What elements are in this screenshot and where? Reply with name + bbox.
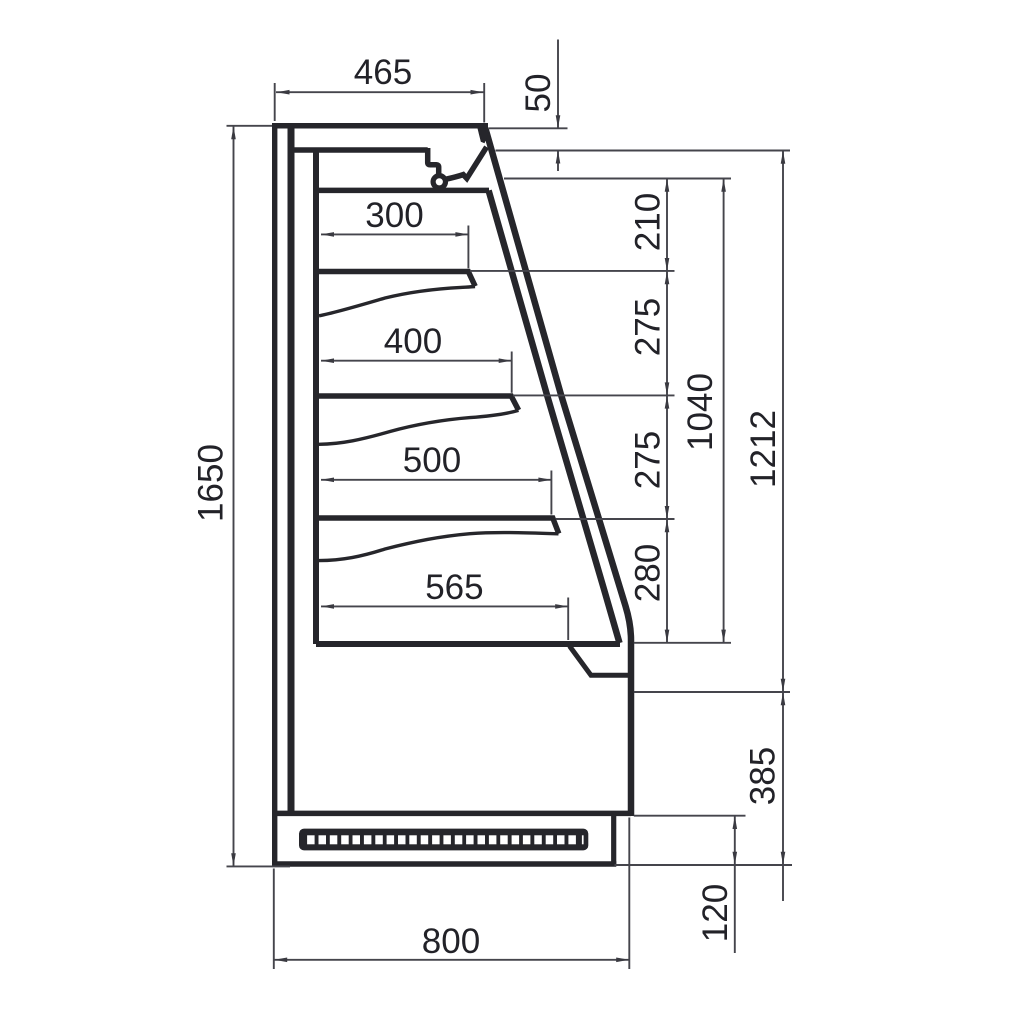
svg-text:565: 565: [425, 568, 483, 607]
svg-text:275: 275: [629, 298, 668, 356]
svg-text:800: 800: [422, 922, 480, 961]
svg-text:500: 500: [403, 441, 461, 480]
svg-text:385: 385: [744, 747, 783, 805]
svg-text:1040: 1040: [681, 373, 720, 451]
svg-text:400: 400: [384, 322, 442, 361]
svg-text:210: 210: [629, 193, 668, 251]
svg-text:280: 280: [629, 544, 668, 602]
svg-text:1212: 1212: [744, 410, 783, 488]
svg-text:300: 300: [365, 196, 423, 235]
svg-text:50: 50: [519, 74, 558, 113]
svg-text:465: 465: [354, 53, 412, 92]
svg-text:120: 120: [696, 884, 735, 942]
svg-text:1650: 1650: [192, 444, 231, 522]
svg-text:275: 275: [629, 431, 668, 489]
